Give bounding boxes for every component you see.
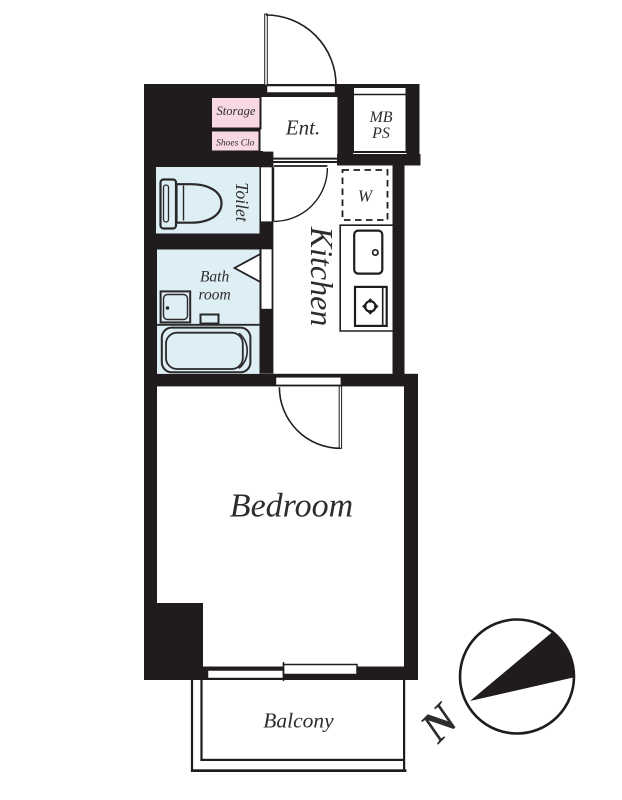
svg-text:Storage: Storage [217,104,256,118]
svg-text:MB: MB [368,109,392,126]
svg-text:PS: PS [371,125,390,142]
svg-text:Toilet: Toilet [232,182,252,222]
svg-text:room: room [199,287,231,304]
svg-text:Bath: Bath [200,269,230,286]
svg-text:Ent.: Ent. [285,116,320,140]
svg-text:Balcony: Balcony [263,709,334,733]
svg-text:Shoes Clo: Shoes Clo [216,139,255,149]
svg-text:Bedroom: Bedroom [230,488,353,525]
svg-text:W: W [358,187,374,206]
svg-text:N: N [410,693,469,752]
svg-text:Kitchen: Kitchen [304,226,340,327]
